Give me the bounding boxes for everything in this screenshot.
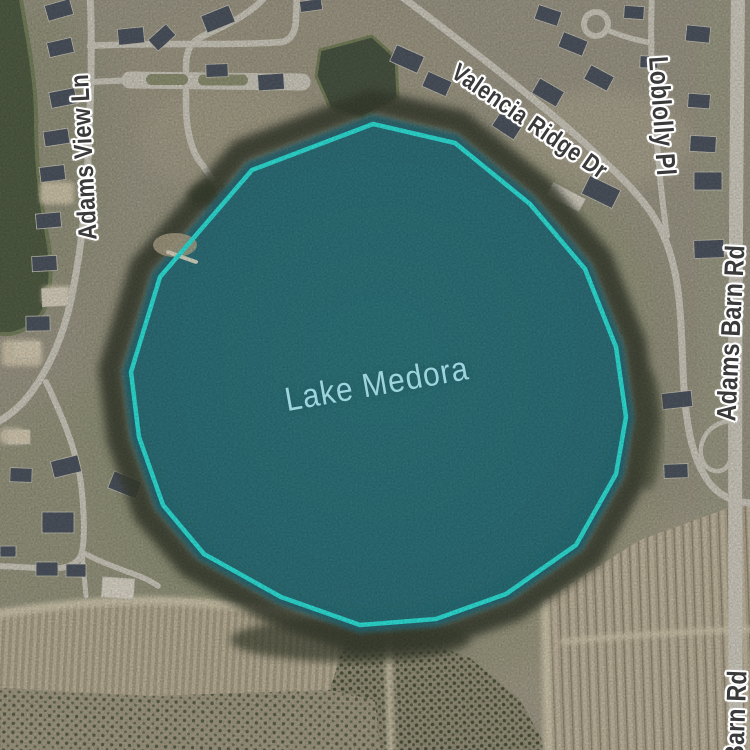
photo-grain [0, 0, 750, 750]
map-graphics [0, 0, 750, 750]
satellite-map-canvas[interactable]: Valencia Ridge Dr Loblolly Pl Adams View… [0, 0, 750, 750]
